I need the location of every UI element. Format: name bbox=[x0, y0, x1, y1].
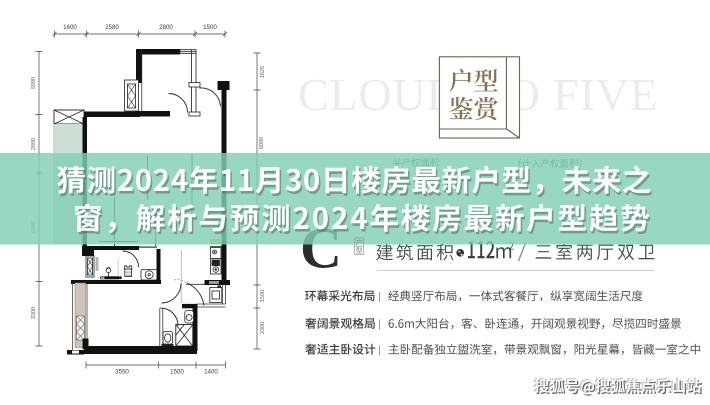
svg-text:2580: 2580 bbox=[105, 24, 119, 31]
svg-text:1600: 1600 bbox=[63, 24, 77, 31]
svg-text:5990: 5990 bbox=[31, 77, 37, 89]
svg-text:2800: 2800 bbox=[159, 24, 173, 31]
svg-text:3300: 3300 bbox=[31, 307, 37, 319]
svg-text:1400: 1400 bbox=[204, 369, 218, 376]
svg-text:2890: 2890 bbox=[31, 138, 37, 150]
svg-text:2300: 2300 bbox=[260, 322, 266, 334]
svg-text:1500: 1500 bbox=[203, 24, 217, 31]
svg-text:3550: 3550 bbox=[115, 369, 129, 376]
svg-text:6000: 6000 bbox=[259, 137, 265, 149]
svg-text:1500: 1500 bbox=[170, 369, 184, 376]
svg-text:1625: 1625 bbox=[260, 66, 266, 78]
svg-text:1500: 1500 bbox=[260, 290, 266, 302]
